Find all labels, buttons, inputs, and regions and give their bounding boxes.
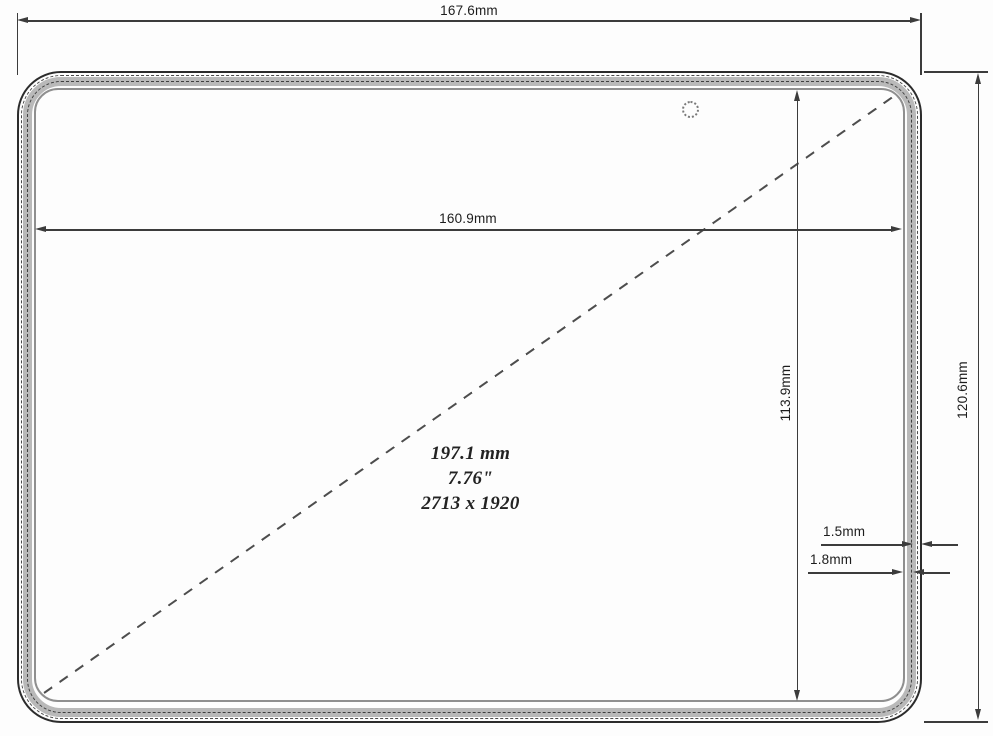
arrowhead-left-icon xyxy=(921,541,932,547)
arrowhead-right-icon xyxy=(891,226,902,232)
dim-bezel-b-line xyxy=(808,572,892,574)
arrowhead-down-icon xyxy=(794,690,800,701)
arrowhead-up-icon xyxy=(975,73,981,84)
dim-display-width-line xyxy=(46,229,891,231)
dim-bezel-a-line xyxy=(821,544,902,546)
dim-display-width-label: 160.9mm xyxy=(408,211,528,226)
dim-display-height-line xyxy=(797,100,799,690)
dim-bezel-a-opposing-line xyxy=(932,544,958,546)
dim-overall-height-label: 120.6mm xyxy=(955,355,971,425)
dim-overall-height-line xyxy=(978,83,980,711)
dim-bezel-b-label: 1.8mm xyxy=(810,552,852,567)
display-info-block: 197.1 mm 7.76" 2713 x 1920 xyxy=(368,441,573,516)
arrowhead-left-icon xyxy=(17,17,28,23)
arrowhead-up-icon xyxy=(794,90,800,101)
arrowhead-right-icon xyxy=(902,541,913,547)
arrowhead-down-icon xyxy=(975,709,981,720)
dim-overall-width-line xyxy=(28,20,910,22)
dim-bezel-a-label: 1.5mm xyxy=(823,524,865,539)
resolution-label: 2713 x 1920 xyxy=(368,491,573,516)
arrowhead-left-icon xyxy=(35,226,46,232)
front-camera-icon xyxy=(682,101,699,118)
arrowhead-left-icon xyxy=(913,569,924,575)
diagonal-mm-label: 197.1 mm xyxy=(368,441,573,466)
dim-overall-width-label: 167.6mm xyxy=(409,3,529,18)
dim-display-height-label: 113.9mm xyxy=(778,358,794,428)
dimensional-drawing: 167.6mm 160.9mm 113.9mm 120.6mm 1.5mm 1.… xyxy=(0,0,993,736)
diagonal-inches-label: 7.76" xyxy=(368,466,573,491)
extension-line xyxy=(924,721,988,723)
dim-bezel-b-opposing-line xyxy=(924,572,950,574)
arrowhead-right-icon xyxy=(892,569,903,575)
arrowhead-right-icon xyxy=(910,17,921,23)
